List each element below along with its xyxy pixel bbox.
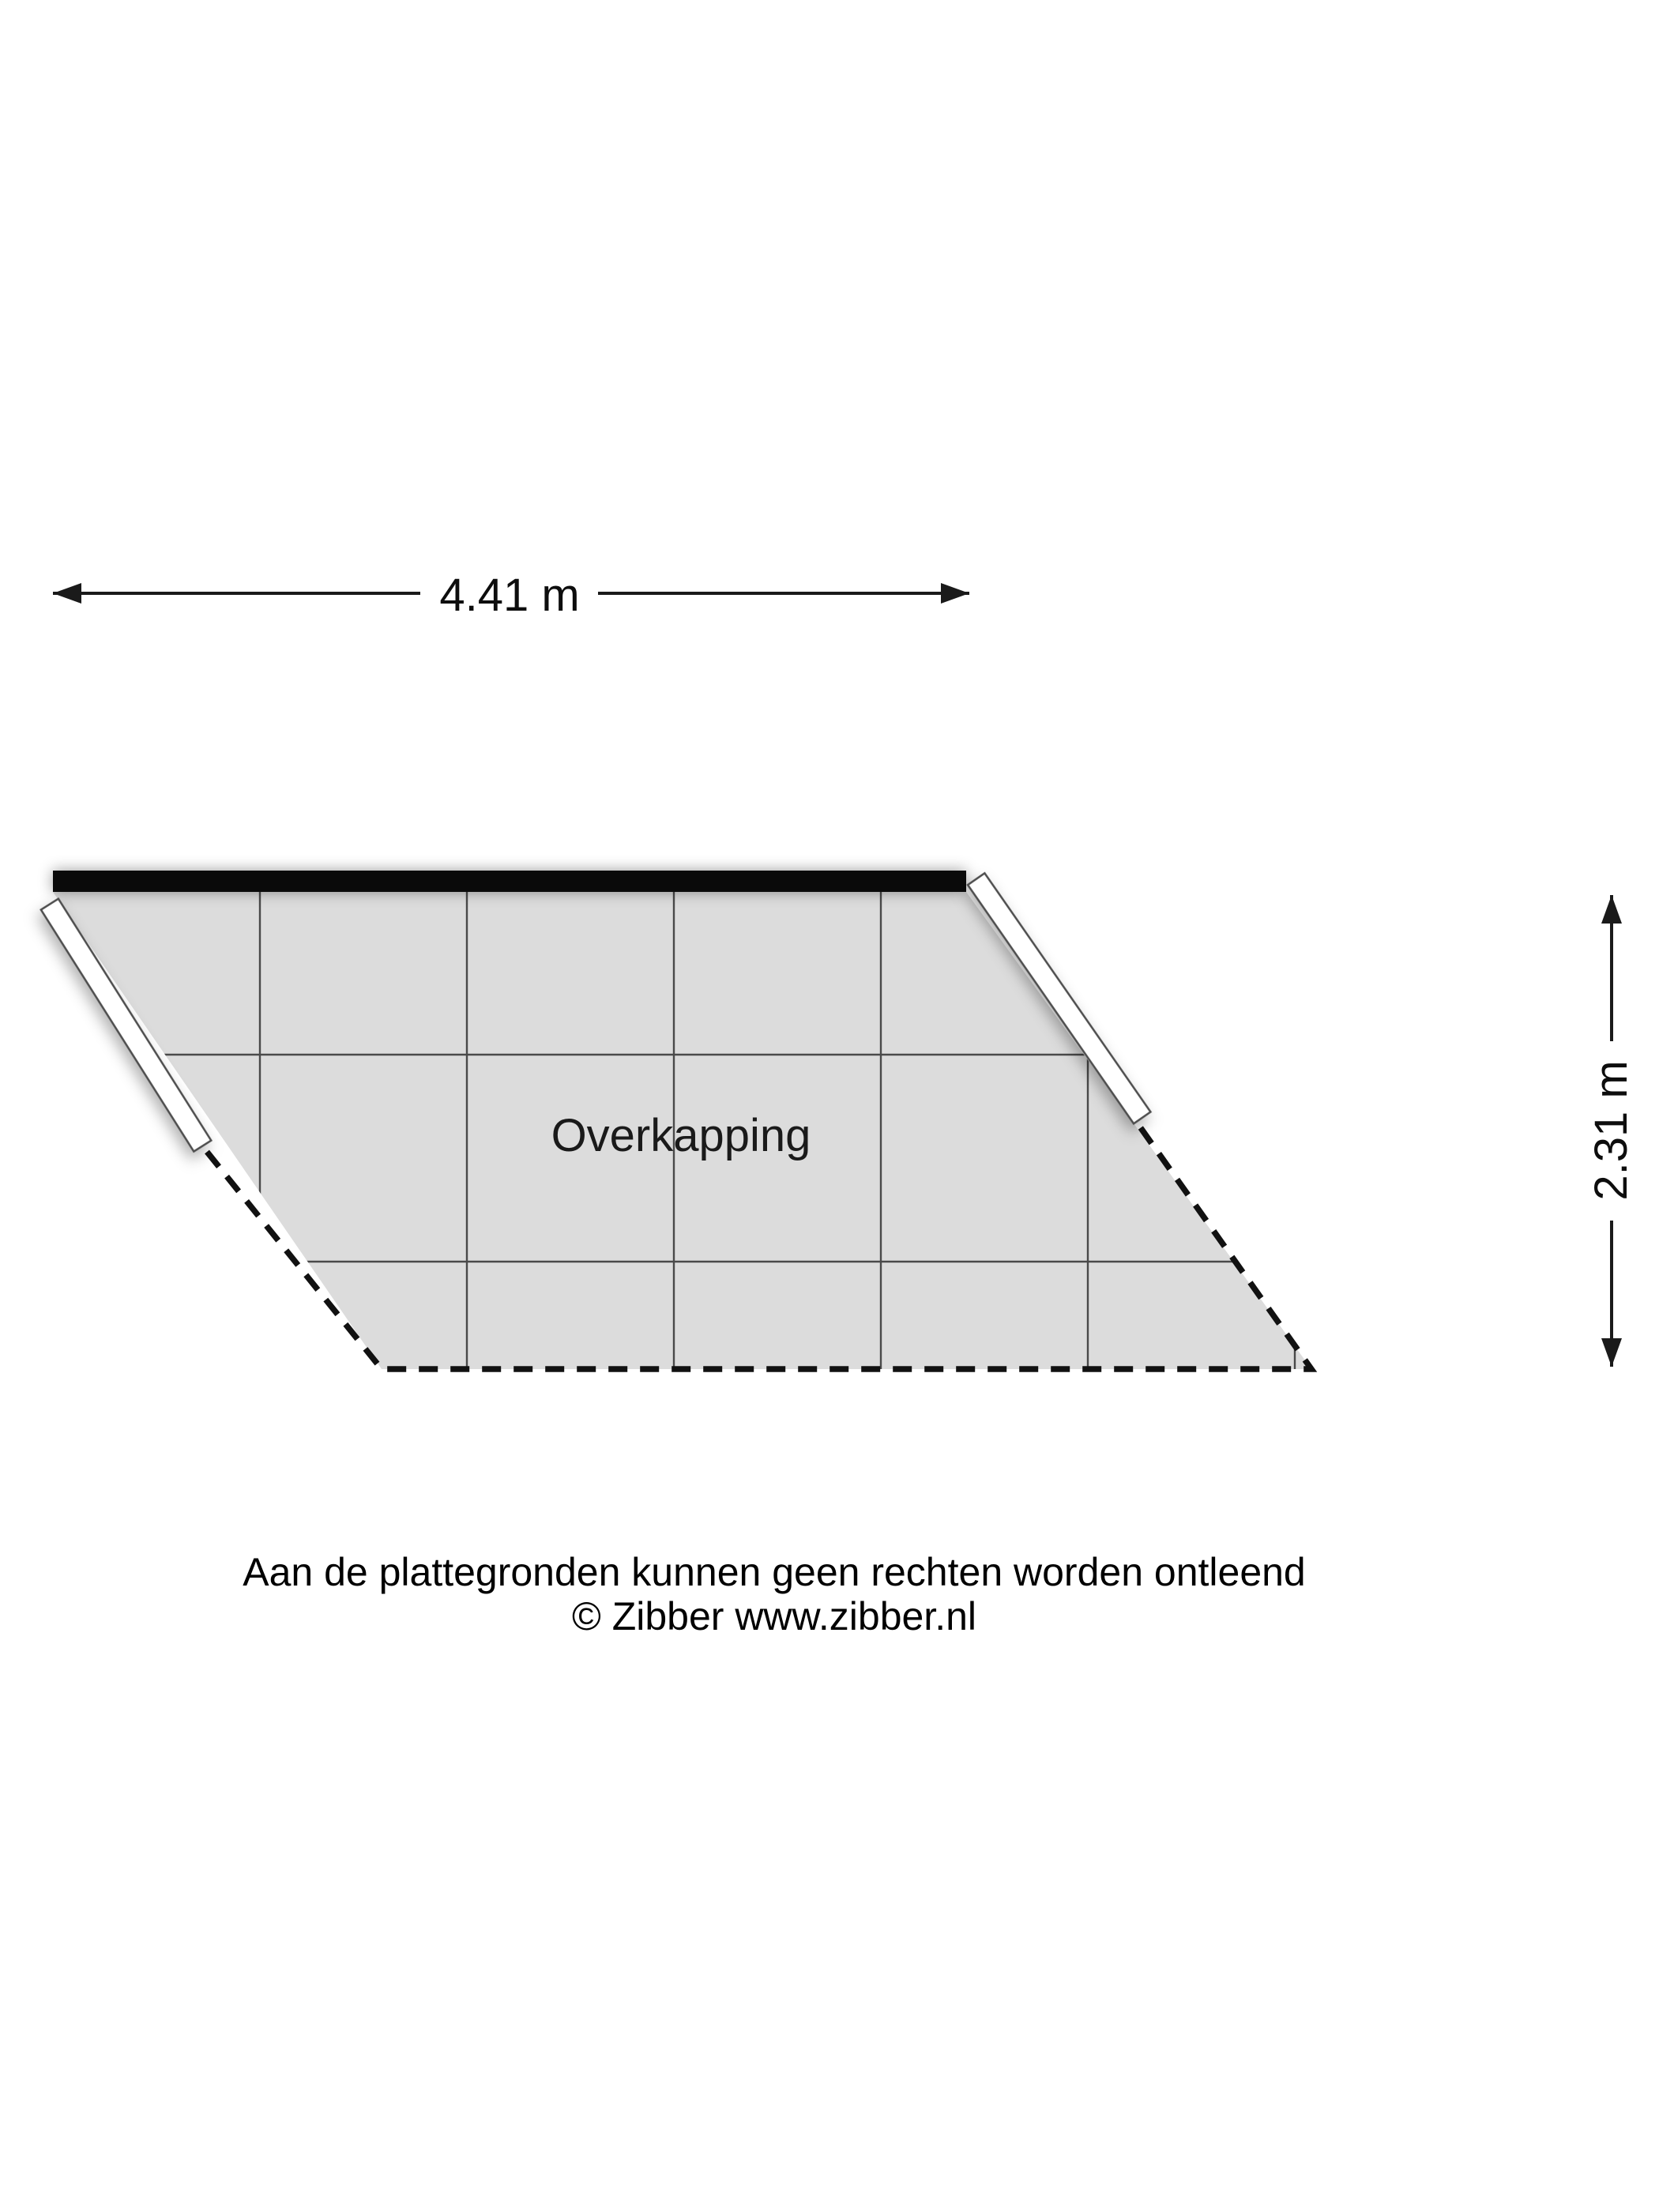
width-dimension-label: 4.41 m [439, 570, 579, 621]
arrow-up-icon [1601, 895, 1622, 924]
height-dimension: 2.31 m [1586, 895, 1637, 1367]
floorplan-page: 4.41 m 2.31 m [0, 0, 1659, 2212]
arrow-right-icon [941, 583, 969, 604]
top-wall [53, 871, 966, 892]
footer-copyright: © Zibber www.zibber.nl [572, 1594, 976, 1638]
room-label: Overkapping [551, 1110, 811, 1161]
footer-disclaimer: Aan de plattegronden kunnen geen rechten… [243, 1550, 1306, 1594]
footer: Aan de plattegronden kunnen geen rechten… [243, 1550, 1306, 1638]
floorplan-drawing: 4.41 m 2.31 m [0, 0, 1659, 2212]
arrow-down-icon [1601, 1338, 1622, 1367]
width-dimension: 4.41 m [53, 570, 969, 621]
arrow-left-icon [53, 583, 81, 604]
height-dimension-label: 2.31 m [1586, 1060, 1637, 1200]
floor-area: Overkapping [41, 871, 1311, 1369]
